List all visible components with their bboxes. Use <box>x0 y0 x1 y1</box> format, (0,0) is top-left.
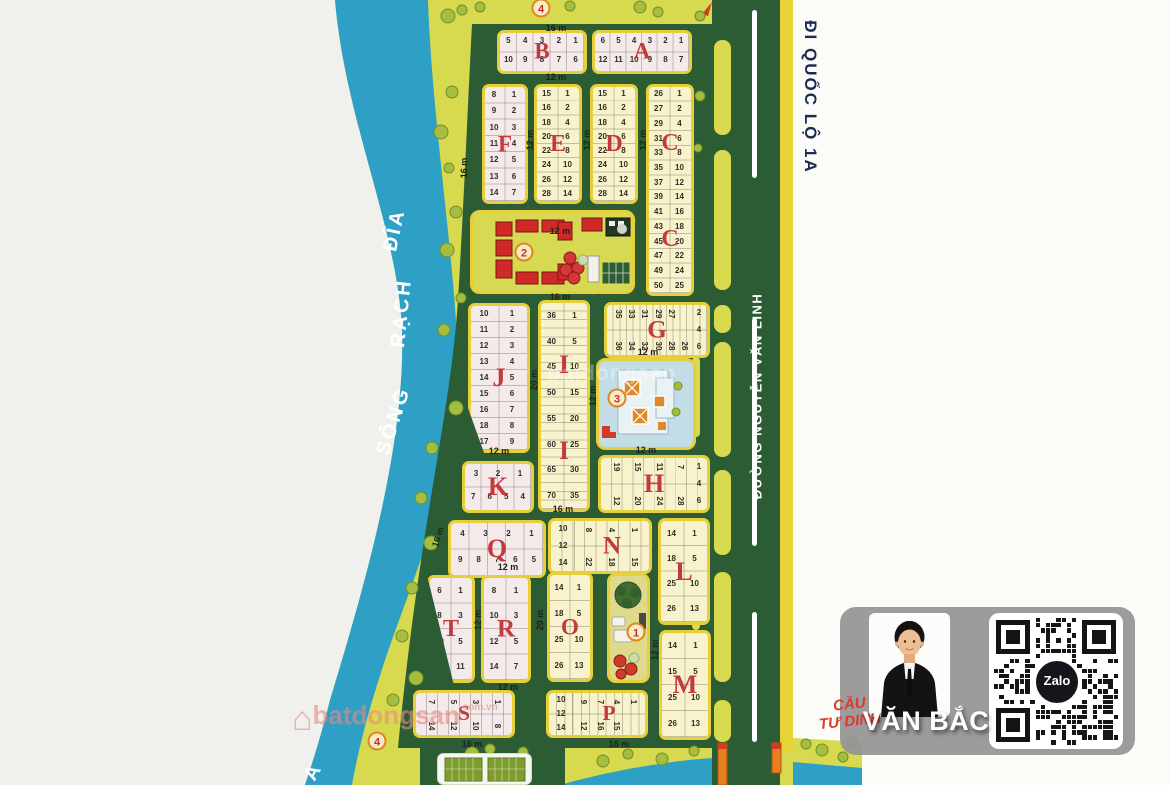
block-A: 654321121110987A <box>592 30 692 74</box>
street-width-label: 16 m <box>546 23 567 33</box>
street-width-label: 12 m <box>582 130 592 151</box>
plot-number: 8 <box>658 55 674 65</box>
plot-number: 39 <box>651 192 666 202</box>
plot-number: 1 <box>501 309 523 319</box>
plot-number: 12 <box>672 178 687 188</box>
plot-number: 28 <box>539 189 554 199</box>
plot-number: 1 <box>628 697 638 707</box>
block-letter-J: J <box>493 365 506 391</box>
block-letter-F: F <box>498 133 512 156</box>
plot-number: 12 <box>560 175 575 185</box>
street-width-label: 12 m <box>638 347 659 357</box>
plot-number: 14 <box>560 189 575 199</box>
plot-number: 15 <box>539 89 554 99</box>
plot-number: 35 <box>613 309 623 319</box>
plot-number: 12 <box>595 55 611 65</box>
block-letter-E: E <box>550 132 566 156</box>
plot-number: 14 <box>664 641 681 651</box>
plot-number: 12 <box>578 721 588 731</box>
plot-number: 36 <box>543 311 560 321</box>
plot-number: 6 <box>567 55 584 65</box>
street-width-label: 12 m <box>489 446 510 456</box>
street-width-label: 16 m <box>550 292 571 302</box>
plot-number: 14 <box>551 723 571 733</box>
block-H: 191511712202428146H <box>598 455 710 513</box>
plot-number: 7 <box>508 662 524 672</box>
plot-number: 22 <box>672 251 687 261</box>
block-letter-L: L <box>675 559 692 585</box>
plot-number: 3 <box>465 469 487 479</box>
plot-number: 1 <box>673 36 689 46</box>
qr-finder-icon <box>996 708 1030 742</box>
plot-number: 6 <box>693 342 705 352</box>
plot-number: 29 <box>651 119 666 129</box>
plot-number: 4 <box>451 529 474 539</box>
plot-number: 8 <box>487 90 501 100</box>
block-D: 151618202224262812468101214D <box>590 84 638 204</box>
plot-number: 2 <box>616 103 631 113</box>
street-width-label: 16 m <box>462 739 483 749</box>
block-letter-K: K <box>488 474 508 500</box>
plot-number: 28 <box>595 189 610 199</box>
plot-number: 7 <box>673 55 689 65</box>
plot-number: 11 <box>473 325 495 335</box>
watermark-bottom-left: ⌂batdongsan.com.vn <box>292 700 498 739</box>
street-width-label: 12 m <box>588 386 598 407</box>
plot-number: 7 <box>465 492 482 502</box>
block-letter-C: C <box>661 227 678 251</box>
plot-number: 16 <box>539 103 554 113</box>
plot-number: 27 <box>666 309 676 319</box>
plot-number: 34 <box>626 341 636 351</box>
plot-number: 4 <box>693 479 705 489</box>
plot-number: 26 <box>595 175 610 185</box>
street-width-label: 12 m <box>546 72 567 82</box>
plot-number: 4 <box>560 118 575 128</box>
plot-number: 1 <box>687 641 704 651</box>
plot-number: 5 <box>566 337 583 347</box>
plot-number: 1 <box>686 529 703 539</box>
plot-number: 13 <box>487 172 501 182</box>
block-letter-Q: Q <box>487 536 507 562</box>
plot-number: 50 <box>543 388 560 398</box>
plot-number: 20 <box>632 496 642 506</box>
plot-number: 18 <box>595 118 610 128</box>
plot-number: 10 <box>672 163 687 173</box>
street-width-label: 12 m <box>550 226 571 236</box>
plot-number: 10 <box>560 160 575 170</box>
street-width-label: 12 m <box>525 130 535 151</box>
plot-number: 15 <box>595 89 610 99</box>
plot-number: 25 <box>672 281 687 291</box>
block-B: 54321109876B <box>497 30 587 74</box>
block-M: 14152526151013M <box>659 630 711 740</box>
plot-number: 12 <box>487 155 501 165</box>
plot-number: 4 <box>672 119 687 129</box>
land-plot-map: 54321109876B654321121110987A891011121314… <box>0 0 1170 785</box>
plot-number: 2 <box>501 325 523 335</box>
block-letter-T: T <box>443 617 459 641</box>
plot-number: 60 <box>543 440 560 450</box>
plot-number: 14 <box>616 189 631 199</box>
plot-number: 12 <box>551 709 571 719</box>
street-width-label: 12 m <box>638 130 648 151</box>
plot-number: 18 <box>539 118 554 128</box>
block-letter-R: R <box>497 617 515 642</box>
plot-number: 4 <box>515 492 532 502</box>
street-width-label: 12 m <box>650 640 660 661</box>
plot-number: 24 <box>539 160 554 170</box>
plot-number: 19 <box>611 462 621 472</box>
street-width-label: 20 m <box>529 370 539 391</box>
block-R: 81012141357R <box>481 575 531 683</box>
plot-number: 30 <box>566 465 583 475</box>
block-letter-C: C <box>661 131 678 155</box>
plot-number: 1 <box>520 529 543 539</box>
zalo-logo-icon: Zalo <box>1033 658 1081 706</box>
bridge-rail <box>718 743 727 785</box>
plot-number: 7 <box>501 405 523 415</box>
block-letter-B: B <box>534 41 549 64</box>
watermark-center: batdongsan <box>548 362 677 386</box>
agent-photo <box>869 613 950 717</box>
zalo-qr-code: Zalo <box>989 613 1123 749</box>
plot-number: 16 <box>473 405 495 415</box>
plot-number: 10 <box>500 55 517 65</box>
plot-number: 5 <box>525 555 543 565</box>
plot-number: 2 <box>672 104 687 114</box>
zone-badge-1: 1 <box>627 623 646 642</box>
plot-number: 1 <box>616 89 631 99</box>
block-letter-N: N <box>603 533 621 558</box>
plot-number: 49 <box>651 266 666 276</box>
street-width-label: 12 m <box>473 610 483 631</box>
street-width-label: 20 m <box>535 610 545 631</box>
block-letter-D: D <box>605 132 622 156</box>
plot-number: 2 <box>507 106 521 116</box>
plot-number: 14 <box>486 662 502 672</box>
plot-number: 26 <box>664 719 681 729</box>
plot-number: 35 <box>651 163 666 173</box>
plot-number: 26 <box>539 175 554 185</box>
plot-number: 12 <box>553 541 573 551</box>
plot-number: 65 <box>543 465 560 475</box>
plot-number: 1 <box>509 469 531 479</box>
plot-number: 14 <box>487 188 501 198</box>
plot-number: 7 <box>550 55 567 65</box>
plot-number: 3 <box>501 341 523 351</box>
plot-number: 1 <box>560 89 575 99</box>
plot-number: 1 <box>572 583 586 593</box>
plot-number: 9 <box>487 106 501 116</box>
plot-number: 33 <box>626 309 636 319</box>
street-width-label: 12 m <box>498 562 519 572</box>
plot-number: 26 <box>663 604 680 614</box>
plot-number: 35 <box>566 491 583 501</box>
plot-number: 2 <box>658 36 674 46</box>
street-width-label: 12 m <box>498 682 519 692</box>
plot-number: 11 <box>453 662 468 672</box>
plot-number: 16 <box>595 103 610 113</box>
plot-number: 14 <box>553 558 573 568</box>
plot-number: 13 <box>572 661 586 671</box>
plot-number: 6 <box>595 36 611 46</box>
plot-number: 8 <box>469 555 487 565</box>
plot-number: 18 <box>473 421 495 431</box>
plot-number: 9 <box>578 697 588 707</box>
plot-number: 12 <box>473 341 495 351</box>
plot-number: 12 <box>616 175 631 185</box>
block-J: 101112131415161817123456789J <box>468 303 530 453</box>
plot-number: 4 <box>616 118 631 128</box>
plot-number: 26 <box>679 341 689 351</box>
block-letter-H: H <box>644 471 664 497</box>
block-I: 364045505560657015101520253035II <box>538 300 590 512</box>
plot-number: 27 <box>651 104 666 114</box>
block-letter-A: A <box>634 41 651 64</box>
plot-number: 10 <box>473 309 495 319</box>
block-letter-M: M <box>673 672 698 698</box>
road-center-line <box>752 10 757 178</box>
plot-number: 15 <box>632 462 642 472</box>
plot-number: 14 <box>552 583 566 593</box>
plot-number: 2 <box>560 103 575 113</box>
plot-number: 8 <box>486 586 502 596</box>
plot-number: 16 <box>672 207 687 217</box>
block-K: 3217654K <box>462 461 534 513</box>
plot-number: 10 <box>616 160 631 170</box>
plot-number: 5 <box>507 155 521 165</box>
block-letter-P: P <box>602 703 615 725</box>
plot-number: 1 <box>508 586 524 596</box>
agent-name: VĂN BẮC <box>856 706 996 737</box>
plot-number: 24 <box>595 160 610 170</box>
road-name-label: ĐƯỜNG NGUYỄN VĂN LINH <box>750 293 765 500</box>
street-width-label: 16 m <box>609 739 630 749</box>
plot-number: 1 <box>629 525 639 535</box>
plot-number: 6 <box>432 586 447 596</box>
qr-finder-icon <box>1082 620 1116 654</box>
plot-number: 36 <box>613 341 623 351</box>
plot-number: 4 <box>517 36 534 46</box>
person-portrait-icon <box>869 613 950 717</box>
plot-number: 26 <box>651 89 666 99</box>
block-letter-G: G <box>647 317 667 342</box>
plot-number: 5 <box>500 36 517 46</box>
plot-number: 6 <box>693 496 705 506</box>
plot-number: 10 <box>551 695 571 705</box>
plot-number: 37 <box>651 178 666 188</box>
plot-number: 20 <box>566 414 583 424</box>
plot-number: 2 <box>693 308 705 318</box>
plot-number: 15 <box>566 388 583 398</box>
block-P: 1012149741121615P <box>546 690 648 738</box>
qr-finder-icon <box>996 620 1030 654</box>
plot-number: 8 <box>583 525 593 535</box>
plot-number: 26 <box>552 661 566 671</box>
plot-number: 22 <box>583 557 593 567</box>
block-letter-O: O <box>561 616 579 639</box>
street-width-label: 16 m <box>553 504 574 514</box>
sports-courts <box>437 753 532 785</box>
plot-number: 28 <box>666 341 676 351</box>
plot-number: 24 <box>672 266 687 276</box>
plot-number: 10 <box>553 524 573 534</box>
plot-number: 14 <box>663 529 680 539</box>
plot-number: 14 <box>672 192 687 202</box>
plot-number: 15 <box>629 557 639 567</box>
plot-number: 12 <box>611 496 621 506</box>
plot-number: 41 <box>651 207 666 217</box>
plot-number: 1 <box>672 89 687 99</box>
plot-number: 28 <box>675 496 685 506</box>
block-N: 101214841221815N <box>548 518 652 574</box>
plot-number: 5 <box>611 36 627 46</box>
plot-number: 1 <box>567 36 584 46</box>
plot-number: 70 <box>543 491 560 501</box>
plot-number: 55 <box>543 414 560 424</box>
zone-badge-2: 2 <box>515 243 534 262</box>
plot-number: 13 <box>686 604 703 614</box>
block-E: 151618202224262812468101214E <box>534 84 582 204</box>
plot-number: 9 <box>517 55 534 65</box>
plot-number: 6 <box>507 172 521 182</box>
street-width-label: 12 m <box>636 445 657 455</box>
block-letter-I: I <box>559 438 569 464</box>
plot-number: 7 <box>507 188 521 198</box>
block-F: 8910111213141234567F <box>482 84 528 204</box>
plot-number: 7 <box>675 462 685 472</box>
plot-number: 8 <box>501 421 523 431</box>
plot-number: 1 <box>453 586 468 596</box>
plot-number: 1 <box>566 311 583 321</box>
zone-badge-3: 3 <box>608 389 627 408</box>
plot-number: 9 <box>451 555 469 565</box>
plot-number: 11 <box>611 55 627 65</box>
highway-direction-label: ĐI QUỐC LỘ 1A <box>800 20 820 174</box>
plot-number: 2 <box>550 36 567 46</box>
plot-number: 1 <box>693 462 705 472</box>
facility-2-compound <box>470 210 635 294</box>
street-width-label: 16 m <box>459 158 469 179</box>
block-C: 2627293133353739414345474950124681012141… <box>646 84 694 296</box>
plot-number: 1 <box>507 90 521 100</box>
plot-number: 47 <box>651 251 666 261</box>
plot-number: 40 <box>543 337 560 347</box>
plot-number: 50 <box>651 281 666 291</box>
house-icon: ⌂ <box>292 700 313 738</box>
block-O: 14182526151013O <box>547 572 593 682</box>
block-L: 14182526151013L <box>658 518 710 625</box>
plot-number: 4 <box>693 325 705 335</box>
plot-number: 13 <box>687 719 704 729</box>
